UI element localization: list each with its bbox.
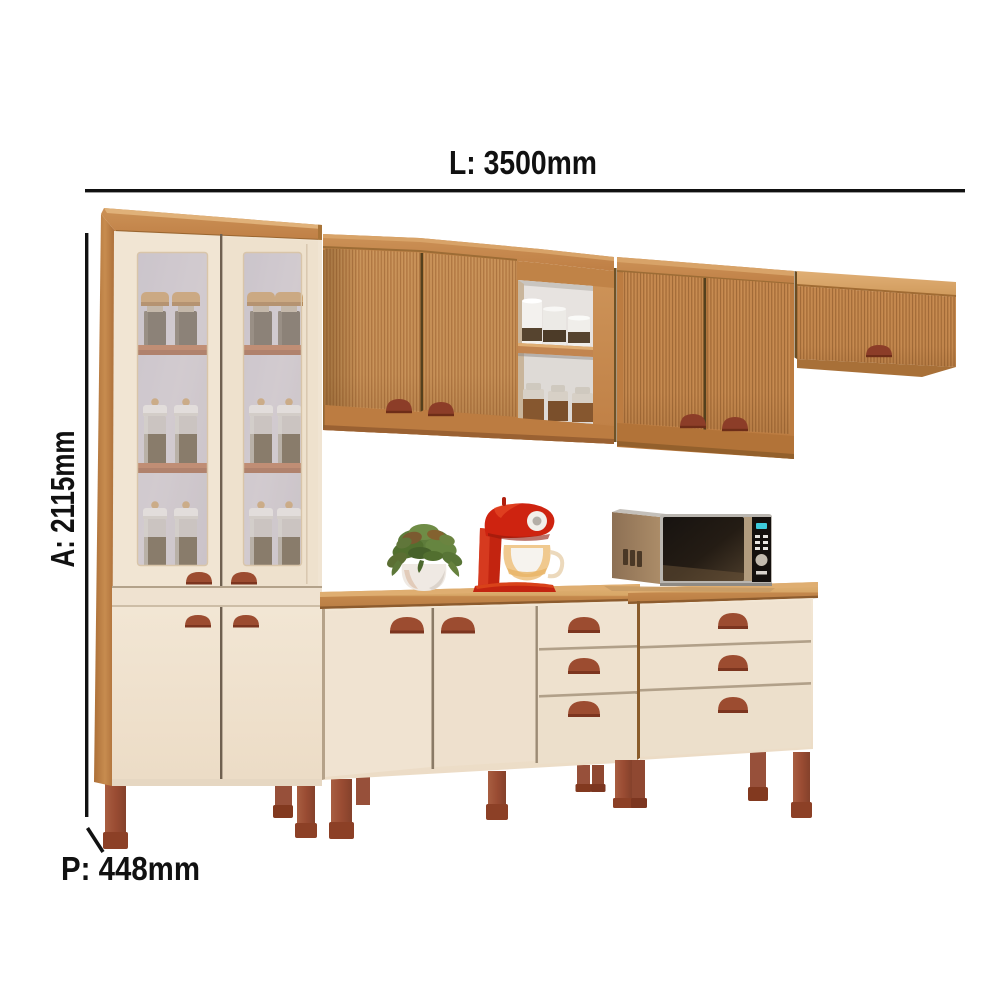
svg-text:P: 448mm: P: 448mm	[61, 850, 200, 887]
svg-text:L: 3500mm: L: 3500mm	[449, 144, 597, 181]
svg-text:A: 2115mm: A: 2115mm	[44, 431, 81, 568]
